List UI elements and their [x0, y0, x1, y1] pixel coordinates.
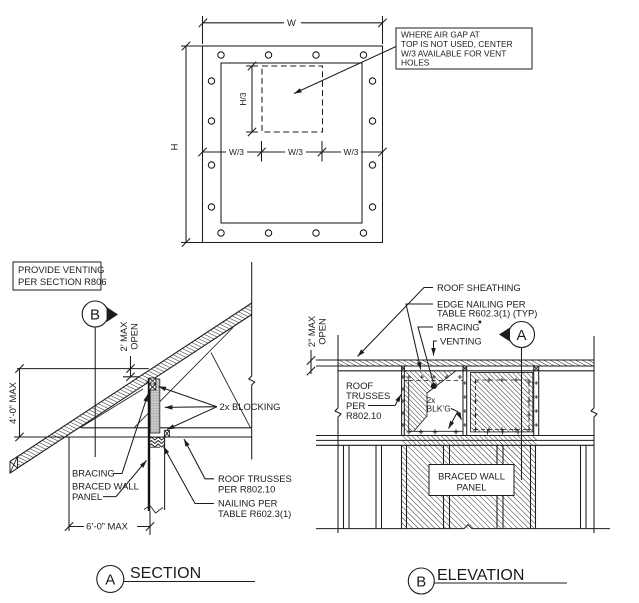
svg-text:OPEN: OPEN — [317, 318, 328, 345]
svg-text:W/3: W/3 — [344, 147, 359, 157]
svg-text:PANEL: PANEL — [72, 491, 102, 502]
svg-text:HOLES: HOLES — [401, 58, 430, 68]
svg-text:4’-0” MAX: 4’-0” MAX — [7, 381, 18, 423]
svg-text:BRACING: BRACING — [437, 322, 480, 333]
svg-text:PROVIDE VENTING: PROVIDE VENTING — [18, 264, 104, 275]
svg-text:NAILING PER: NAILING PER — [218, 498, 278, 509]
svg-text:2’ MAX: 2’ MAX — [118, 321, 129, 352]
svg-text:A: A — [105, 572, 115, 589]
svg-text:TABLE R602.3(1) (TYP): TABLE R602.3(1) (TYP) — [437, 308, 537, 319]
svg-text:R802.10: R802.10 — [346, 410, 381, 421]
svg-text:2x BLOCKING: 2x BLOCKING — [220, 401, 281, 412]
svg-text:BLK’G: BLK’G — [427, 404, 451, 414]
svg-text:VENTING: VENTING — [440, 336, 482, 347]
svg-text:ROOF TRUSSES: ROOF TRUSSES — [218, 473, 292, 484]
svg-text:W: W — [287, 17, 296, 28]
svg-text:6’-0” MAX: 6’-0” MAX — [86, 521, 128, 532]
svg-text:BRACING: BRACING — [72, 468, 115, 479]
svg-text:W/3: W/3 — [288, 147, 303, 157]
svg-text:B: B — [90, 307, 100, 324]
svg-text:B: B — [416, 574, 426, 591]
svg-text:A: A — [516, 327, 526, 344]
svg-text:ELEVATION: ELEVATION — [437, 567, 524, 584]
svg-text:ROOF SHEATHING: ROOF SHEATHING — [437, 282, 521, 293]
svg-text:TABLE R602.3(1): TABLE R602.3(1) — [218, 508, 291, 519]
svg-text:H/3: H/3 — [238, 92, 248, 105]
svg-text:SECTION: SECTION — [130, 565, 201, 582]
svg-text:H: H — [169, 144, 180, 151]
svg-text:BRACED WALL: BRACED WALL — [438, 471, 505, 482]
svg-text:2” MAX: 2” MAX — [306, 315, 317, 347]
svg-text:OPEN: OPEN — [129, 323, 140, 350]
svg-text:PER R802.10: PER R802.10 — [218, 484, 275, 495]
svg-text:PER SECTION R806: PER SECTION R806 — [18, 276, 107, 287]
svg-text:W/3: W/3 — [229, 147, 244, 157]
svg-text:PANEL: PANEL — [456, 482, 486, 493]
